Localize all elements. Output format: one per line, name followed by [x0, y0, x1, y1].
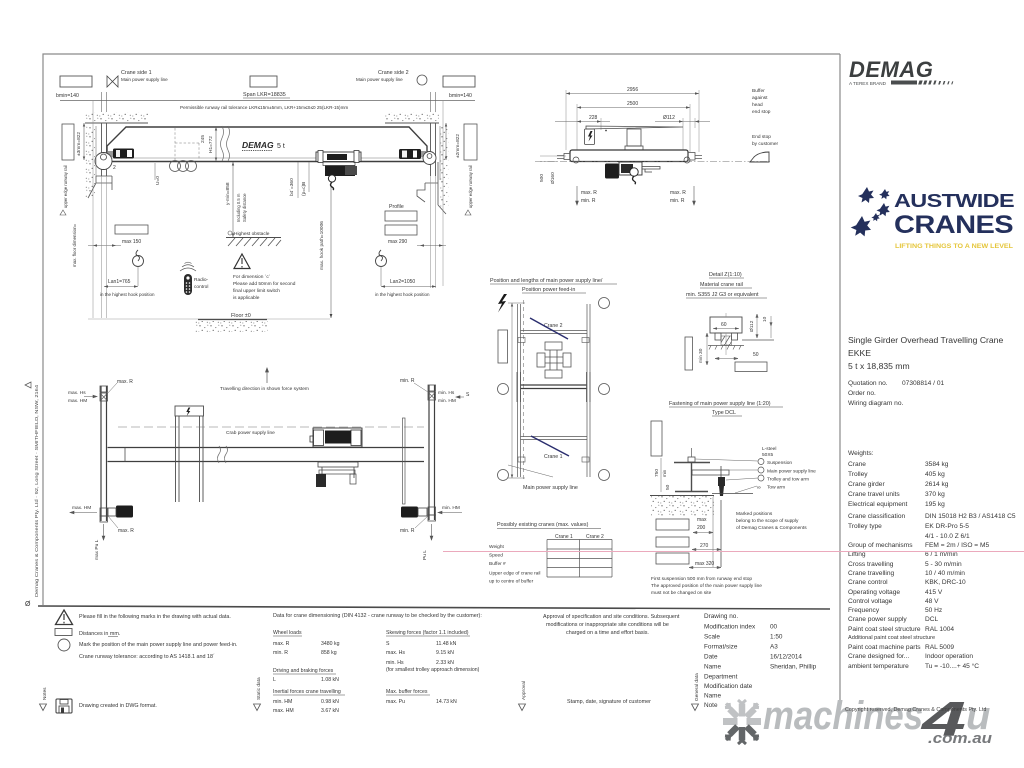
svg-text:belong to the scope of supply: belong to the scope of supply — [736, 518, 799, 524]
svg-text:Weight: Weight — [489, 544, 505, 550]
svg-text:48 V: 48 V — [925, 598, 939, 605]
svg-text:Control voltage: Control voltage — [848, 598, 893, 605]
svg-text:min. HM: min. HM — [438, 398, 456, 404]
svg-text:DEMAG: DEMAG — [242, 140, 274, 150]
svg-text:Ø160: Ø160 — [550, 172, 556, 184]
svg-text:Safety distance: Safety distance — [242, 193, 247, 222]
svg-text:Name: Name — [704, 664, 721, 671]
svg-text:Crane 1: Crane 1 — [555, 534, 573, 540]
svg-text:Single Girder Overhead Travell: Single Girder Overhead Travelling Crane — [848, 335, 1003, 345]
svg-text:Trolley: Trolley — [848, 471, 868, 478]
svg-text:Material crane rail: Material crane rail — [700, 282, 743, 288]
svg-text:Main power supply line: Main power supply line — [767, 469, 816, 475]
svg-text:2.33 kN: 2.33 kN — [436, 660, 454, 666]
svg-text:EKKE: EKKE — [848, 348, 871, 358]
svg-text:Inertial forces crane travelli: Inertial forces crane travelling — [273, 689, 341, 695]
svg-text:AUSTWIDE: AUSTWIDE — [894, 190, 1014, 211]
svg-text:max. Hs: max. Hs — [68, 390, 86, 396]
svg-text:Tow arm: Tow arm — [767, 485, 785, 491]
svg-text:Note: Note — [704, 702, 718, 709]
svg-text:Detail Z(1:10): Detail Z(1:10) — [709, 272, 742, 278]
svg-text:Name: Name — [704, 693, 721, 700]
svg-text:Crane travelling: Crane travelling — [848, 570, 895, 577]
svg-text:Wiring diagram no.: Wiring diagram no. — [848, 400, 904, 407]
svg-text:5 t: 5 t — [277, 143, 285, 150]
svg-text:2: 2 — [113, 165, 116, 171]
svg-text:Upper edge of crane rail: Upper edge of crane rail — [489, 571, 540, 577]
svg-text:Crane 2: Crane 2 — [544, 323, 563, 329]
svg-text:Copyright reserved, Demag Cran: Copyright reserved, Demag Cranes & Compo… — [845, 707, 986, 713]
svg-text:FEM = 2m / ISO = M5: FEM = 2m / ISO = M5 — [925, 542, 989, 549]
svg-text:max Pu L: max Pu L — [94, 539, 100, 560]
svg-text:Operating voltage: Operating voltage — [848, 589, 900, 596]
svg-text:Please add 50mm for second: Please add 50mm for second — [233, 281, 296, 287]
svg-text:DCL: DCL — [925, 616, 939, 623]
svg-text:min. Hs: min. Hs — [386, 660, 404, 666]
svg-text:Electrical equipment: Electrical equipment — [848, 501, 908, 508]
svg-text:Department: Department — [704, 674, 738, 681]
svg-text:in the highest hook position: in the highest hook position — [375, 292, 430, 297]
svg-text:max 320: max 320 — [695, 561, 714, 567]
svg-text:270: 270 — [700, 543, 709, 549]
svg-text:Possibly existing cranes (max.: Possibly existing cranes (max. values) — [497, 522, 589, 528]
svg-text:machines: machines — [763, 694, 923, 738]
svg-text:Approval: Approval — [521, 681, 527, 700]
svg-text:Weights:: Weights: — [848, 450, 874, 457]
svg-text:Main power supply line: Main power supply line — [356, 77, 403, 82]
svg-text:07308814 / 01: 07308814 / 01 — [902, 380, 945, 387]
svg-text:min. R: min. R — [273, 650, 288, 656]
svg-text:Crane: Crane — [848, 461, 866, 468]
svg-text:EK DR-Pro 5-5: EK DR-Pro 5-5 — [925, 523, 969, 530]
svg-text:500: 500 — [539, 174, 545, 182]
svg-text:max: max — [697, 517, 707, 523]
svg-text:Tu = -10....+ 45 °C: Tu = -10....+ 45 °C — [925, 662, 979, 670]
svg-text:max. HM: max. HM — [68, 398, 87, 404]
svg-text:Crane runway tolerance: accord: Crane runway tolerance: according to AS … — [79, 654, 215, 660]
svg-text:max. HM: max. HM — [273, 708, 294, 714]
svg-text:Date: Date — [704, 654, 718, 661]
svg-text:±2mm=822: ±2mm=822 — [455, 134, 461, 158]
svg-text:Quotation no.: Quotation no. — [848, 380, 888, 387]
svg-text:b4´=360: b4´=360 — [289, 178, 295, 196]
svg-text:min. R: min. R — [670, 198, 685, 204]
svg-text:Format/size: Format/size — [704, 644, 738, 651]
svg-text:LIFTING THINGS TO A NEW LEVEL: LIFTING THINGS TO A NEW LEVEL — [895, 243, 1013, 250]
svg-text:A TEREX BRAND: A TEREX BRAND — [849, 81, 887, 86]
svg-text:DIN 15018 H2 B3 / AS1418 C5: DIN 15018 H2 B3 / AS1418 C5 — [925, 513, 1016, 520]
svg-text:max. R: max. R — [670, 190, 686, 196]
svg-text:up to centre of buffer: up to centre of buffer — [489, 579, 534, 585]
svg-text:Span LKR=18835: Span LKR=18835 — [243, 92, 286, 98]
svg-text:Ø112: Ø112 — [663, 115, 675, 121]
svg-text:KBK, DRC-10: KBK, DRC-10 — [925, 579, 966, 586]
svg-text:Speed: Speed — [489, 553, 503, 559]
svg-text:max 150: max 150 — [122, 239, 141, 245]
svg-text:must not be changed on site: must not be changed on site — [651, 590, 712, 596]
svg-text:Demag Cranes & Components Pty.: Demag Cranes & Components Pty. Ltd · 92,… — [34, 384, 39, 597]
svg-text:Stamp, date, signature of cust: Stamp, date, signature of customer — [567, 699, 651, 705]
svg-text:195 kg: 195 kg — [925, 501, 945, 508]
svg-text:by customer: by customer — [752, 141, 779, 147]
svg-text:Ø: Ø — [25, 601, 31, 608]
svg-text:min. R: min. R — [581, 198, 596, 204]
svg-text:10 / 40 m/min: 10 / 40 m/min — [925, 570, 965, 577]
svg-text:U=0: U=0 — [155, 176, 161, 185]
svg-text:Data for crane dimensioning (D: Data for crane dimensioning (DIN 4132 - … — [273, 613, 482, 619]
svg-text:2956: 2956 — [627, 87, 638, 93]
svg-text:Skewing forces (factor 1.1 inc: Skewing forces (factor 1.1 included) — [386, 630, 469, 636]
svg-text:Pu L: Pu L — [422, 550, 428, 560]
svg-text:Wheel loads: Wheel loads — [273, 630, 302, 636]
svg-text:max. R: max. R — [118, 528, 134, 534]
svg-text:Modification index: Modification index — [704, 624, 756, 631]
svg-text:750: 750 — [654, 469, 660, 477]
svg-text:DEMAG: DEMAG — [849, 57, 933, 82]
svg-text:is applicable: is applicable — [233, 295, 260, 301]
svg-text:Crane power supply: Crane power supply — [848, 616, 907, 623]
svg-text:2614 kg: 2614 kg — [925, 481, 949, 488]
svg-text:Drawing created in DWG format.: Drawing created in DWG format. — [79, 703, 157, 709]
svg-text:(p=c)B: (p=c)B — [301, 182, 307, 196]
svg-text:Driving and braking forces: Driving and braking forces — [273, 668, 334, 674]
svg-text:max 290: max 290 — [388, 239, 407, 245]
svg-text:S: S — [386, 641, 390, 647]
svg-text:Crane designed for...: Crane designed for... — [848, 653, 909, 660]
svg-text:L: L — [273, 677, 276, 683]
svg-text:max. Hs: max. Hs — [386, 650, 405, 656]
svg-text:Order no.: Order no. — [848, 390, 876, 397]
svg-text:Paint coat steel structure: Paint coat steel structure — [848, 626, 921, 633]
svg-text:3.67 kN: 3.67 kN — [321, 708, 339, 714]
svg-text:min. R: min. R — [400, 378, 415, 384]
svg-text:Cross travelling: Cross travelling — [848, 561, 894, 568]
svg-text:min: min — [662, 469, 667, 477]
svg-text:max. R: max. R — [581, 190, 597, 196]
svg-text:For dimension ´c´: For dimension ´c´ — [233, 274, 271, 280]
svg-text:Frequency: Frequency — [848, 607, 880, 614]
svg-text:Travelling direction in shown: Travelling direction in shown force syst… — [220, 386, 309, 392]
svg-text:Crane side 1: Crane side 1 — [121, 70, 152, 76]
svg-text:Lan2=1050: Lan2=1050 — [390, 279, 415, 285]
svg-text:in the highest hook position: in the highest hook position — [100, 292, 155, 297]
svg-text:y-min=858: y-min=858 — [225, 182, 231, 205]
svg-text:min. S355 J2 G3 or equivalent: min. S355 J2 G3 or equivalent — [686, 292, 759, 298]
svg-text:RAL 5009: RAL 5009 — [925, 644, 954, 651]
svg-text:Permissible runway rail tolera: Permissible runway rail tolerance LKR≤15… — [180, 105, 348, 110]
svg-text:upper edge runway rail: upper edge runway rail — [468, 165, 473, 208]
svg-text:Profile: Profile — [389, 204, 404, 210]
svg-text:bmin=140: bmin=140 — [56, 93, 79, 99]
svg-text:First suspension 500 mm from r: First suspension 500 mm from runway end … — [651, 576, 752, 582]
svg-text:min. R: min. R — [400, 528, 415, 534]
svg-text:9.15 kN: 9.15 kN — [436, 650, 454, 656]
svg-text:228: 228 — [589, 115, 598, 121]
svg-text:ambient temperature: ambient temperature — [848, 663, 909, 670]
svg-text:Crab power supply line: Crab power supply line — [226, 430, 275, 436]
svg-text:50: 50 — [665, 484, 671, 490]
svg-text:Floor ±0: Floor ±0 — [231, 313, 251, 319]
svg-text:min. HM: min. HM — [273, 699, 292, 705]
svg-text:Marked positions: Marked positions — [736, 511, 773, 517]
svg-text:Buffer: Buffer — [752, 88, 765, 94]
svg-text:control: control — [194, 284, 208, 290]
svg-text:5 t x 18,835 mm: 5 t x 18,835 mm — [848, 361, 910, 371]
svg-text:Including 0.5 m: Including 0.5 m — [236, 193, 241, 222]
svg-text:max. R: max. R — [117, 379, 133, 385]
svg-text:1:50: 1:50 — [770, 634, 783, 641]
svg-text:Fastening of main power supply: Fastening of main power supply line (1:2… — [669, 401, 771, 407]
svg-text:00: 00 — [770, 624, 778, 631]
svg-text:A3: A3 — [770, 644, 778, 651]
svg-text:1.08 kN: 1.08 kN — [321, 677, 339, 683]
svg-text:858 kg: 858 kg — [321, 650, 337, 656]
svg-text:10: 10 — [762, 316, 768, 322]
svg-text:Ø112: Ø112 — [749, 320, 755, 332]
svg-text:Distances in mm.: Distances in mm. — [79, 631, 120, 637]
svg-text:Indoor operation: Indoor operation — [925, 653, 973, 660]
svg-text:Crane 2: Crane 2 — [586, 534, 604, 540]
svg-text:Position and lengths of main p: Position and lengths of main power suppl… — [490, 278, 603, 284]
svg-text:Main power supply line: Main power supply line — [121, 77, 168, 82]
svg-text:Lan1=765: Lan1=765 — [108, 279, 131, 285]
svg-text:charged on a time and effort b: charged on a time and effort basis. — [566, 630, 649, 636]
svg-text:405 kg: 405 kg — [925, 471, 945, 478]
svg-text:60: 60 — [721, 322, 727, 328]
svg-text:max. R: max. R — [273, 641, 290, 647]
svg-text:4/1 - 10.0 Z 6/1: 4/1 - 10.0 Z 6/1 — [925, 533, 970, 540]
svg-text:max. Pu: max. Pu — [386, 699, 405, 705]
svg-text:415 V: 415 V — [925, 589, 943, 596]
svg-text:14.73 kN: 14.73 kN — [436, 699, 457, 705]
svg-text:of Demag Cranes & Components: of Demag Cranes & Components — [736, 525, 807, 531]
svg-text:0.98 kN: 0.98 kN — [321, 699, 339, 705]
svg-text:Paint coat machine parts: Paint coat machine parts — [848, 644, 921, 651]
svg-text:±3mm=822: ±3mm=822 — [76, 132, 82, 156]
svg-text:Approval of specification and: Approval of specification and site condi… — [543, 614, 680, 620]
svg-text:Main power supply line: Main power supply line — [523, 485, 578, 491]
svg-text:16/12/2014: 16/12/2014 — [770, 654, 802, 661]
svg-text:Crane 1: Crane 1 — [544, 454, 563, 460]
svg-text:∞: ∞ — [757, 485, 761, 491]
svg-text:2500: 2500 — [627, 101, 638, 107]
svg-text:Crane girder: Crane girder — [848, 481, 885, 488]
svg-text:upper edge runway rail: upper edge runway rail — [63, 165, 68, 208]
svg-text:Crane travel units: Crane travel units — [848, 491, 900, 498]
svg-text:max. hook path=10006: max. hook path=10006 — [319, 221, 325, 270]
svg-text:min. HM: min. HM — [442, 505, 460, 511]
svg-text:End stop: End stop — [752, 134, 771, 140]
svg-text:final upper limit switch: final upper limit switch — [233, 288, 280, 294]
svg-text:Crane side 2: Crane side 2 — [378, 70, 409, 76]
svg-text:Static data: Static data — [256, 677, 262, 700]
svg-text:3480 kg: 3480 kg — [321, 641, 340, 647]
svg-text:CRANES: CRANES — [894, 211, 1013, 239]
svg-text:Mark the position of the main: Mark the position of the main power supp… — [79, 642, 238, 648]
svg-text:245: 245 — [200, 135, 206, 143]
svg-text:RAL 1004: RAL 1004 — [925, 626, 954, 633]
svg-text:.com.au: .com.au — [928, 730, 992, 747]
svg-text:L-steel: L-steel — [762, 446, 776, 452]
svg-text:head: head — [752, 102, 763, 108]
svg-text:min 30: min 30 — [698, 348, 704, 363]
svg-text:Crane classification: Crane classification — [848, 513, 906, 520]
svg-text:end stop: end stop — [752, 109, 771, 115]
svg-text:Suspension: Suspension — [767, 460, 792, 466]
svg-text:bmin=140: bmin=140 — [449, 93, 472, 99]
svg-text:H1=772: H1=772 — [208, 136, 214, 153]
svg-text:Highest obstacle: Highest obstacle — [234, 231, 270, 237]
svg-text:Scale: Scale — [704, 634, 720, 641]
svg-text:50: 50 — [753, 352, 759, 358]
svg-text:Additional paint coat steel st: Additional paint coat steel structure — [848, 635, 935, 641]
svg-text:max. floor dimension=: max. floor dimension= — [72, 223, 77, 267]
svg-text:General data: General data — [694, 673, 700, 701]
svg-text:Group of mechanisms: Group of mechanisms — [848, 542, 913, 549]
svg-text:against: against — [752, 95, 768, 101]
svg-text:Type DCL: Type DCL — [712, 410, 736, 416]
svg-text:3584 kg: 3584 kg — [925, 461, 949, 468]
svg-text:Radio-: Radio- — [194, 277, 209, 283]
svg-text:Crane control: Crane control — [848, 579, 888, 586]
svg-text:370 kg: 370 kg — [925, 491, 945, 498]
svg-text:50 Hz: 50 Hz — [925, 607, 942, 614]
svg-text:(for smallest trolley approach: (for smallest trolley approach dimension… — [386, 667, 480, 673]
svg-text:Modification date: Modification date — [704, 683, 753, 690]
svg-text:Buffer #: Buffer # — [489, 561, 506, 567]
svg-text:max. HM: max. HM — [72, 505, 91, 511]
svg-text:Drawing no.: Drawing no. — [704, 613, 738, 620]
svg-text:5 - 30 m/min: 5 - 30 m/min — [925, 561, 962, 568]
svg-text:Position power feed-in: Position power feed-in — [522, 287, 575, 293]
svg-text:Trolley and tow arm: Trolley and tow arm — [767, 477, 809, 483]
svg-text:min. Hs: min. Hs — [438, 390, 455, 396]
svg-text:Notes: Notes — [42, 687, 48, 700]
svg-text:200: 200 — [697, 525, 706, 531]
svg-text:Trolley type: Trolley type — [848, 523, 882, 530]
svg-text:11.48 kN: 11.48 kN — [436, 641, 457, 647]
svg-text:The approved position of the m: The approved position of the main power … — [651, 583, 762, 589]
svg-text:modifications or inappropriate: modifications or inappropriate site cond… — [546, 622, 669, 628]
svg-text:Max. buffer forces: Max. buffer forces — [386, 689, 428, 695]
svg-text:Please fill in the following m: Please fill in the following marks in th… — [79, 614, 231, 620]
svg-text:50X5: 50X5 — [762, 452, 774, 458]
svg-text:Sheridan, Phillip: Sheridan, Phillip — [770, 664, 817, 671]
